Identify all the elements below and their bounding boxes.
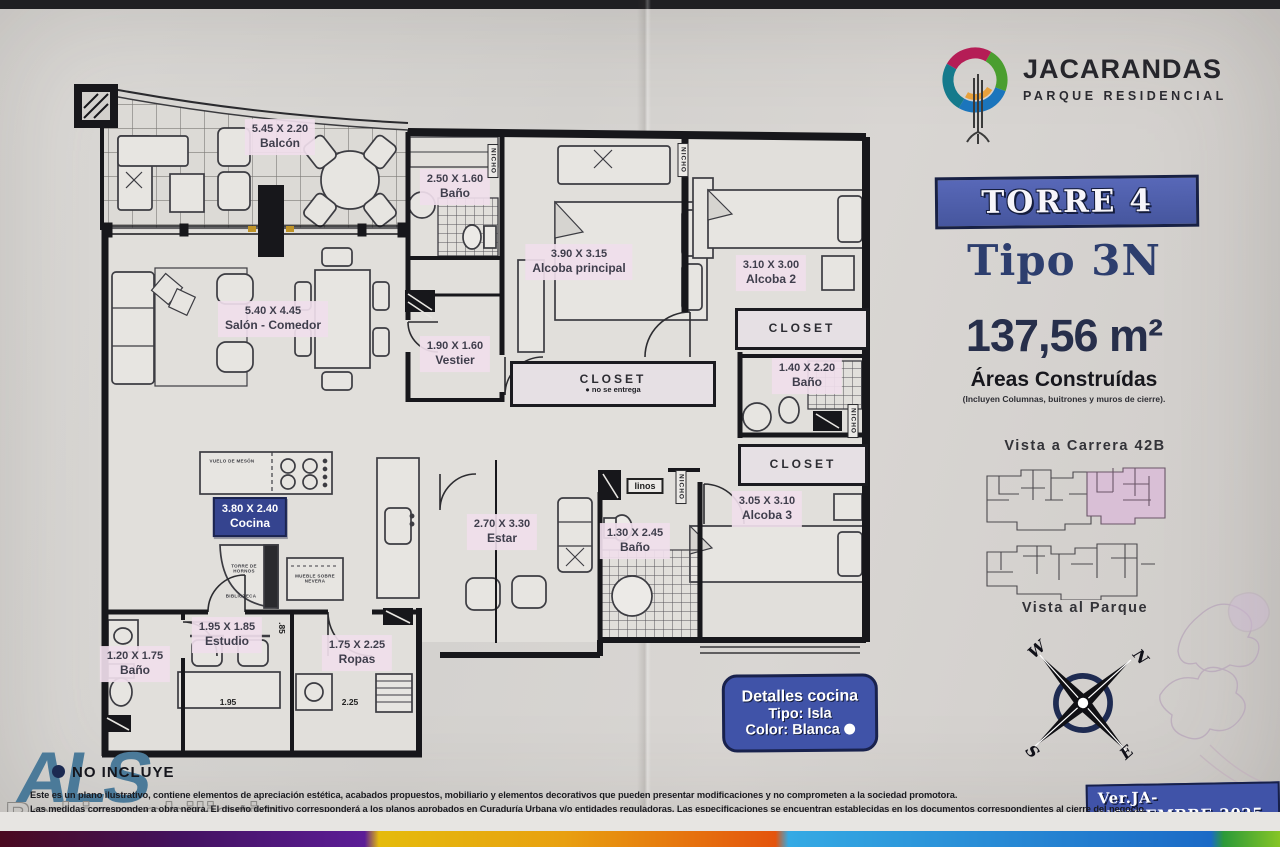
kitchen-counter: [377, 458, 419, 598]
rainbow-footer-strip: [0, 831, 1280, 847]
note-vuelo-meson: VUELO DE MESÓN: [209, 458, 255, 463]
armchair: [217, 274, 253, 304]
unit-area: 137,56 m²: [935, 310, 1193, 362]
room-label-bano-alcoba2: 1.40 X 2.20Baño: [772, 358, 842, 394]
compass-w: W: [1024, 635, 1051, 662]
compass-s: S: [1022, 741, 1044, 762]
brand-tagline: PARQUE RESIDENCIAL: [1023, 89, 1227, 103]
tower-banner: TORRE 4: [935, 175, 1200, 230]
compass-rose-icon: N W S E: [1008, 628, 1158, 778]
toilet: [110, 678, 132, 706]
floorplan-flyer-photo: CLOSET ● no se entrega CLOSET CLOSET 5.4…: [0, 0, 1280, 847]
chair: [512, 576, 546, 608]
room-label-alcoba-principal: 3.90 X 3.15Alcoba principal: [525, 244, 632, 280]
bench: [558, 146, 670, 184]
area-note: (Incluyen Columnas, buitrones y muros de…: [935, 394, 1193, 404]
area-title: Áreas Construídas: [935, 368, 1193, 392]
kitchen-badge-type: Tipo: Isla: [768, 706, 832, 723]
floor-plan: CLOSET ● no se entrega CLOSET CLOSET 5.4…: [60, 80, 930, 765]
closet-principal: CLOSET ● no se entrega: [510, 361, 716, 407]
dim-mid: .85: [277, 622, 287, 634]
kitchen-badge-color: Color: Blanca: [745, 722, 839, 739]
no-incluye-label: NO INCLUYE: [52, 764, 175, 781]
room-label-salon-comedor: 5.40 X 4.45Salón - Comedor: [218, 301, 328, 337]
note-mueble-nevera: MUEBLE SOBRE NEVERA: [289, 574, 341, 585]
view-label-top: Vista a Carrera 42B: [960, 438, 1210, 454]
disclaimer-line-1: Este es un plano ilustrativo, contiene e…: [30, 790, 957, 800]
jacarandas-logo-icon: [935, 40, 1021, 148]
note-torre-hornos: TORRE DE HORNOS: [222, 564, 266, 575]
toilet: [463, 225, 481, 249]
closet-label: CLOSET: [769, 322, 836, 335]
keyplan-bottom-floorplate: [987, 544, 1155, 600]
room-label-alcoba-3: 3.05 X 3.10Alcoba 3: [732, 491, 802, 527]
room-label-estar: 2.70 X 3.30Estar: [467, 514, 537, 550]
room-label-balcon: 5.45 X 2.20Balcón: [245, 119, 315, 155]
dim-ropas: 2.25: [342, 697, 359, 707]
flower-sketch: [1140, 575, 1280, 810]
toilet: [779, 397, 799, 423]
sofa: [112, 272, 154, 384]
paper-bottom-edge: [0, 812, 1280, 831]
chair: [466, 578, 500, 610]
room-label-vestier: 1.90 X 1.60Vestier: [420, 336, 490, 372]
closet-label: CLOSET: [770, 458, 837, 471]
nicho-label: NICHO: [678, 143, 689, 177]
floor-plan-drawing: [60, 80, 930, 765]
shelf: [376, 674, 412, 712]
nicho-label: NICHO: [676, 470, 687, 504]
room-label-bano-medio: 1.30 X 2.45Baño: [600, 523, 670, 559]
kitchen-badge-title: Detalles cocina: [742, 687, 859, 706]
bullet-icon: [52, 765, 65, 778]
brand-header: JACARANDAS PARQUE RESIDENCIAL: [935, 40, 1265, 145]
armchair: [217, 342, 253, 372]
sink-round: [612, 576, 652, 616]
closet-alcoba3: CLOSET: [738, 444, 868, 486]
room-label-cocina: 3.80 X 2.40Cocina: [213, 497, 287, 537]
room-label-bano-servicio: 1.20 X 1.75Baño: [100, 646, 170, 682]
sink-round: [743, 403, 771, 431]
room-label-estudio: 1.95 X 1.85Estudio: [192, 617, 262, 653]
nicho-label: NICHO: [488, 144, 499, 178]
nicho-label: NICHO: [848, 404, 859, 438]
side-table: [834, 494, 862, 520]
closet-alcoba2: CLOSET: [735, 308, 869, 350]
brand-name: JACARANDAS: [1023, 54, 1227, 85]
note-biblioteca: BIBLIOTECA: [216, 593, 266, 598]
room-label-bano-principal: 2.50 X 1.60Baño: [420, 169, 490, 205]
room-label-ropas: 1.75 X 2.25Ropas: [322, 635, 392, 671]
dim-estudio: 1.95: [220, 697, 237, 707]
white-color-dot: [844, 724, 855, 735]
closet-note: ● no se entrega: [585, 386, 640, 394]
sofa-estar: [558, 498, 592, 572]
unit-type: Tipo 3N: [935, 236, 1193, 285]
washer: [296, 674, 332, 710]
nightstand: [822, 256, 854, 290]
room-label-alcoba-2: 3.10 X 3.00Alcoba 2: [736, 255, 806, 291]
linos-label: linos: [626, 478, 663, 494]
kitchen-details-badge: Detalles cocina Tipo: Isla Color: Blanca: [722, 673, 879, 752]
keyplan-top-floorplate: [987, 468, 1165, 530]
